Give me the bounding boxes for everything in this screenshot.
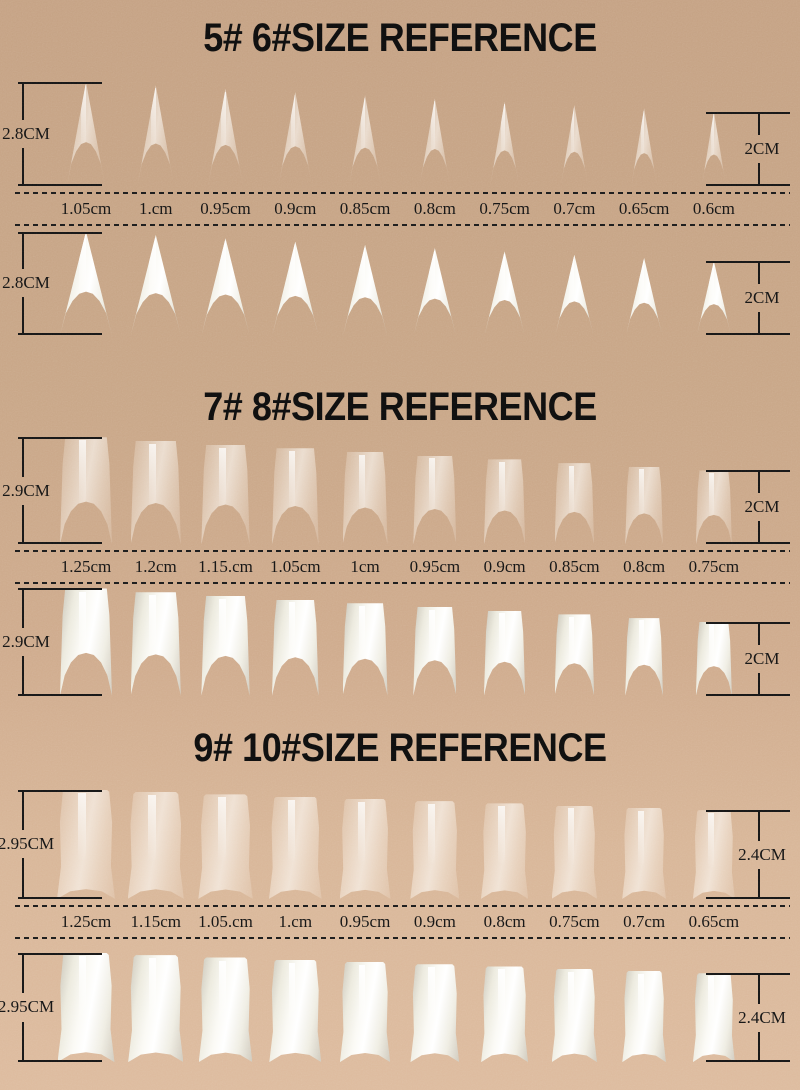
nail-column [475, 966, 535, 1062]
bracket-line [22, 297, 24, 333]
nail-column [544, 463, 604, 544]
dashed-line [15, 937, 790, 939]
nail-column [614, 467, 674, 545]
nail-tip-square-clear [410, 801, 459, 899]
measurement-label: 2.8CM [2, 273, 50, 293]
bracket-cap [706, 810, 790, 812]
nail-column [126, 441, 186, 545]
nail-tip-square-clear [269, 797, 322, 899]
nail-column [405, 248, 465, 335]
bracket-cap [18, 184, 102, 186]
nail-column [405, 607, 465, 696]
size-label: 0.9cm [475, 557, 535, 577]
bracket-line [22, 505, 24, 543]
nail-tip-stiletto-clear [349, 95, 381, 185]
size-label: 0.8cm [614, 557, 674, 577]
nail-column [196, 596, 256, 696]
nail-column [196, 238, 256, 335]
size-labels-row: 1.05cm1.cm0.95cm0.9cm0.85cm0.8cm0.75cm0.… [0, 194, 800, 224]
bracket-line [758, 869, 760, 897]
nail-tip-square-clear [198, 794, 252, 899]
section-title: 5# 6#SIZE REFERENCE [40, 12, 760, 64]
nail-tip-square-white [199, 957, 253, 1062]
bracket-cap [706, 542, 790, 544]
nail-tip-square-white [128, 955, 183, 1062]
dashed-line [15, 582, 790, 584]
bracket-cap [706, 622, 790, 624]
size-labels-strip: 1.25cm1.2cm1.15.cm1.05cm1cm0.95cm0.9cm0.… [0, 550, 800, 584]
bracket-line [758, 521, 760, 542]
nail-row-clear: 2.8CM2CM [0, 82, 800, 186]
size-label: 0.8cm [405, 199, 465, 219]
nail-tip-stiletto-clear [420, 98, 450, 185]
nail-tip-stiletto-clear [208, 89, 243, 186]
bracket-cap [18, 588, 102, 590]
bracket-line [758, 472, 760, 493]
nail-tip-stiletto-white [414, 248, 456, 335]
bracket-line [758, 673, 760, 694]
size-label: 0.95cm [196, 199, 256, 219]
bracket-cap [18, 790, 102, 792]
measurement-bracket-right: 2CM [706, 622, 790, 696]
nail-column [405, 98, 465, 185]
measurement-bracket-right: 2.4CM [706, 810, 790, 899]
nail-tip-curved-white [484, 611, 525, 696]
nail-column [475, 803, 535, 899]
nail-column [126, 85, 186, 185]
nail-column [544, 255, 604, 336]
bracket-line [22, 439, 24, 477]
nail-column [614, 258, 674, 335]
nail-column [475, 102, 535, 186]
nail-tip-stiletto-white [343, 245, 387, 335]
size-label: 0.95cm [405, 557, 465, 577]
nail-tip-stiletto-white [555, 255, 593, 336]
nail-tip-square-white [481, 966, 528, 1062]
nail-column [126, 955, 186, 1062]
bracket-line [22, 590, 24, 628]
nail-tip-stiletto-white [131, 235, 181, 335]
nail-tip-curved-white [343, 603, 388, 696]
nail-column [265, 242, 325, 336]
size-label: 0.65cm [614, 199, 674, 219]
bracket-line [22, 148, 24, 184]
nail-tip-square-clear [340, 799, 391, 899]
nail-tip-curved-clear [555, 463, 595, 544]
nail-row-clear: 2.9CM2CM [0, 437, 800, 544]
bracket-line [758, 975, 760, 1003]
nail-column [335, 603, 395, 696]
nail-tip-curved-white [272, 600, 319, 696]
bracket-cap [18, 897, 102, 899]
nail-tip-stiletto-clear [561, 105, 588, 186]
nail-row-white: 2.9CM2CM [0, 588, 800, 695]
nail-tip-stiletto-clear [138, 85, 174, 185]
measurement-bracket-right: 2CM [706, 470, 790, 544]
bracket-cap [18, 694, 102, 696]
bracket-line [22, 792, 24, 831]
nail-row-clear: 2.95CM2.4CM [0, 790, 800, 899]
nail-tip-square-white [622, 971, 666, 1062]
bracket-line [758, 114, 760, 135]
nail-tip-square-clear [622, 808, 666, 899]
bracket-cap [18, 953, 102, 955]
measurement-bracket-left: 2.95CM [18, 790, 102, 899]
bracket-cap [18, 542, 102, 544]
measurement-bracket-right: 2CM [706, 112, 790, 186]
nail-tip-curved-white [413, 607, 456, 696]
nail-tip-curved-clear [484, 459, 525, 544]
nail-column [475, 251, 535, 335]
nail-column [196, 89, 256, 186]
nail-column [126, 235, 186, 335]
bracket-cap [706, 897, 790, 899]
measurement-label: 2.8CM [2, 124, 50, 144]
bracket-line [758, 263, 760, 284]
size-label: 0.95cm [335, 912, 395, 932]
bracket-cap [18, 82, 102, 84]
size-label: 1.05cm [56, 199, 116, 219]
bracket-line [758, 1032, 760, 1060]
size-label: 0.75cm [684, 557, 744, 577]
nail-tip-square-clear [552, 806, 598, 899]
dashed-line [15, 224, 790, 226]
measurement-bracket-left: 2.8CM [18, 232, 102, 336]
nail-tip-stiletto-clear [631, 108, 657, 185]
bracket-cap [18, 1060, 102, 1062]
bracket-cap [706, 1060, 790, 1062]
bracket-cap [18, 232, 102, 234]
bracket-cap [706, 184, 790, 186]
nail-tip-curved-clear [413, 456, 456, 545]
nail-tip-curved-white [201, 596, 249, 696]
bracket-line [758, 163, 760, 184]
size-labels-strip: 1.05cm1.cm0.95cm0.9cm0.85cm0.8cm0.75cm0.… [0, 192, 800, 226]
bracket-line [758, 624, 760, 645]
nail-tip-stiletto-white [485, 251, 525, 335]
size-label: 1.05cm [265, 557, 325, 577]
bracket-cap [18, 333, 102, 335]
nail-column [196, 794, 256, 899]
measurement-label: 2.95CM [0, 834, 54, 854]
nail-tip-stiletto-white [202, 238, 250, 335]
page: 5# 6#SIZE REFERENCE 2.8CM2CM 1.05cm1.cm0… [0, 0, 800, 1090]
nail-tip-curved-clear [343, 452, 388, 545]
bracket-line [22, 955, 24, 994]
nail-column [544, 614, 604, 695]
nail-column [614, 108, 674, 185]
size-labels-row: 1.25cm1.15cm1.05.cm1.cm0.95cm0.9cm0.8cm0… [0, 907, 800, 937]
nail-column [614, 618, 674, 696]
nail-column [475, 611, 535, 696]
nail-tip-square-white [552, 969, 597, 1062]
nail-tip-stiletto-clear [279, 92, 312, 186]
measurement-bracket-right: 2CM [706, 261, 790, 335]
nail-tip-square-clear [481, 803, 528, 899]
size-label: 1.cm [126, 199, 186, 219]
measurement-label: 2.95CM [0, 997, 54, 1017]
nail-column [475, 459, 535, 544]
nail-tip-stiletto-clear [490, 102, 519, 186]
size-label: 0.85cm [544, 557, 604, 577]
section-title: 7# 8#SIZE REFERENCE [40, 381, 760, 433]
bracket-line [758, 812, 760, 840]
nail-column [335, 95, 395, 185]
size-label: 0.85cm [335, 199, 395, 219]
size-label: 0.75cm [544, 912, 604, 932]
nail-column [544, 969, 604, 1062]
measurement-label: 2.4CM [738, 1008, 786, 1028]
nail-column [614, 808, 674, 899]
size-label: 0.9cm [405, 912, 465, 932]
nail-column [405, 456, 465, 545]
measurement-bracket-left: 2.9CM [18, 588, 102, 695]
size-label: 1.15.cm [196, 557, 256, 577]
size-label: 0.6cm [684, 199, 744, 219]
bracket-line [758, 312, 760, 333]
nail-tip-square-white [410, 964, 459, 1062]
nail-row-white: 2.95CM2.4CM [0, 953, 800, 1062]
nail-column [544, 105, 604, 186]
nail-column [335, 962, 395, 1062]
bracket-line [22, 858, 24, 897]
nail-tip-curved-clear [201, 445, 249, 545]
nail-column [614, 971, 674, 1062]
bracket-cap [706, 261, 790, 263]
nail-column [265, 600, 325, 696]
nail-tip-curved-white [625, 618, 663, 696]
measurement-bracket-left: 2.8CM [18, 82, 102, 186]
size-label: 1.2cm [126, 557, 186, 577]
nail-tip-curved-clear [625, 467, 663, 545]
nail-column [405, 801, 465, 899]
section-title: 9# 10#SIZE REFERENCE [40, 722, 760, 774]
measurement-label: 2.9CM [2, 632, 50, 652]
bracket-line [22, 656, 24, 694]
size-label: 1.cm [265, 912, 325, 932]
size-label: 1cm [335, 557, 395, 577]
nail-tip-curved-white [555, 614, 595, 695]
size-label: 1.05.cm [196, 912, 256, 932]
nail-tip-curved-clear [272, 448, 319, 544]
nail-column [544, 806, 604, 899]
bracket-cap [706, 112, 790, 114]
measurement-bracket-right: 2.4CM [706, 973, 790, 1062]
nail-column [126, 792, 186, 899]
section-5-6: 5# 6#SIZE REFERENCE 2.8CM2CM 1.05cm1.cm0… [0, 12, 800, 335]
measurement-label: 2.9CM [2, 481, 50, 501]
nail-tip-square-clear [128, 792, 184, 899]
measurement-label: 2CM [745, 649, 780, 669]
nail-column [405, 964, 465, 1062]
section-7-8: 7# 8#SIZE REFERENCE 2.9CM2CM 1.25cm1.2cm… [0, 381, 800, 696]
bracket-line [22, 84, 24, 120]
bracket-cap [18, 437, 102, 439]
measurement-label: 2CM [745, 139, 780, 159]
nail-column [265, 960, 325, 1062]
nail-row-white: 2.8CM2CM [0, 232, 800, 336]
measurement-label: 2.4CM [738, 845, 786, 865]
measurement-label: 2CM [745, 497, 780, 517]
measurement-bracket-left: 2.9CM [18, 437, 102, 544]
section-9-10: 9# 10#SIZE REFERENCE 2.95CM2.4CM 1.25cm1… [0, 722, 800, 1062]
bracket-cap [706, 694, 790, 696]
measurement-bracket-left: 2.95CM [18, 953, 102, 1062]
size-label: 0.65cm [684, 912, 744, 932]
nail-column [196, 957, 256, 1062]
bracket-cap [706, 470, 790, 472]
nail-column [126, 592, 186, 696]
nail-column [335, 245, 395, 335]
nail-tip-square-white [340, 962, 390, 1062]
nail-column [265, 92, 325, 186]
size-label: 0.7cm [614, 912, 674, 932]
nail-tip-curved-clear [131, 441, 181, 545]
size-labels-strip: 1.25cm1.15cm1.05.cm1.cm0.95cm0.9cm0.8cm0… [0, 905, 800, 939]
nail-tip-curved-white [131, 592, 181, 696]
size-label: 0.7cm [544, 199, 604, 219]
bracket-line [22, 1022, 24, 1061]
nail-column [196, 445, 256, 545]
size-label: 1.15cm [126, 912, 186, 932]
measurement-label: 2CM [745, 288, 780, 308]
nail-column [335, 452, 395, 545]
size-labels-row: 1.25cm1.2cm1.15.cm1.05cm1cm0.95cm0.9cm0.… [0, 552, 800, 582]
nail-tip-stiletto-white [272, 242, 318, 336]
nail-tip-square-white [269, 960, 321, 1062]
bracket-cap [706, 973, 790, 975]
size-label: 0.9cm [265, 199, 325, 219]
bracket-cap [706, 333, 790, 335]
nail-column [265, 797, 325, 899]
nail-tip-stiletto-white [626, 258, 662, 335]
size-label: 1.25cm [56, 912, 116, 932]
bracket-line [22, 234, 24, 270]
size-label: 0.75cm [475, 199, 535, 219]
size-label: 0.8cm [475, 912, 535, 932]
nail-column [265, 448, 325, 544]
size-label: 1.25cm [56, 557, 116, 577]
nail-column [335, 799, 395, 899]
